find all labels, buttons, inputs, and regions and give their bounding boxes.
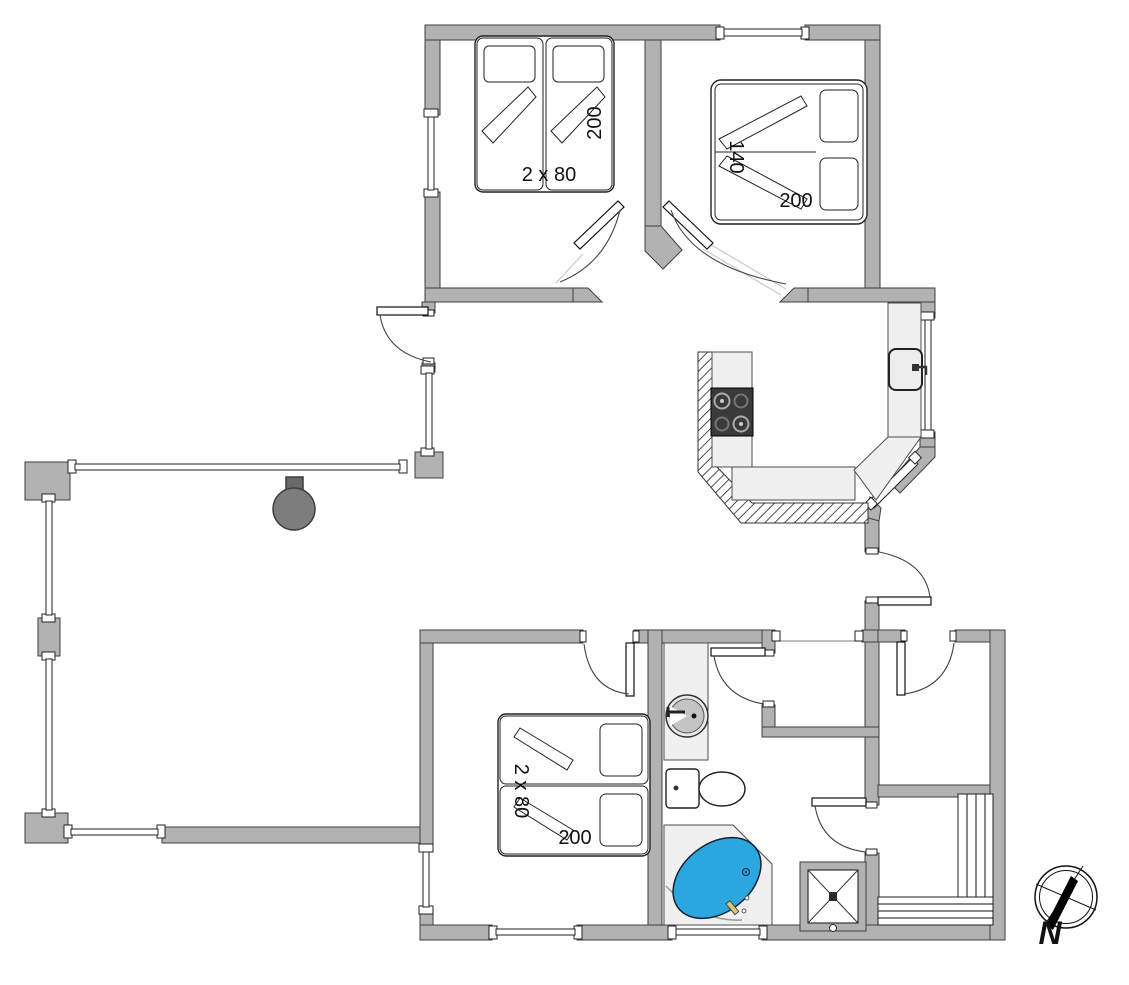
bathroom-sink: [666, 695, 708, 737]
compass-rose: N: [1035, 866, 1097, 951]
door-living-hall: [377, 307, 434, 364]
bed-width-label: 140: [725, 140, 747, 173]
window-bedroom-sw-south: [489, 926, 582, 939]
twin-beds-sw: 2 x 80 200: [498, 714, 650, 856]
kitchen-sink: [889, 349, 926, 390]
sauna-benches: [878, 794, 993, 925]
bed-length-label: 200: [779, 190, 812, 212]
door-exterior-east: [866, 548, 931, 605]
pillow: [553, 46, 604, 82]
toilet: [666, 769, 745, 808]
twin-beds-nw: 200 2 x 80: [475, 36, 614, 192]
floor-plan-svg: 200 2 x 80 140 200 2 x 80 200 N: [0, 0, 1129, 985]
corner-bathtub: [657, 821, 776, 935]
bed-width-label: 2 x 80: [510, 764, 532, 818]
door-bathroom: [711, 648, 774, 707]
door-bedroom-nw: [556, 201, 624, 283]
kitchen-counter-bottom: [732, 467, 855, 500]
bed-length-label: 200: [584, 106, 606, 139]
window-living-west-lower: [42, 652, 55, 817]
door-bedroom-sw: [580, 631, 639, 696]
window-living-west-upper: [42, 494, 55, 622]
pillow: [600, 724, 642, 776]
window-bathroom-south: [668, 926, 767, 939]
door-sauna: [812, 798, 877, 855]
shower: [800, 862, 866, 932]
window-bedroom-ne-north: [716, 27, 809, 39]
window-living-south: [64, 825, 165, 838]
window-bedroom-nw-west: [424, 109, 438, 197]
kitchen-stove: [711, 388, 753, 436]
pillow: [600, 794, 642, 846]
bathroom: [657, 643, 866, 935]
window-hall-west: [421, 366, 434, 456]
pillow: [484, 46, 535, 82]
bed-length-label: 200: [558, 827, 591, 849]
door-annex-room: [897, 631, 956, 695]
window-bedroom-sw-west: [419, 844, 433, 914]
pillow: [820, 158, 858, 210]
pillow: [820, 90, 858, 142]
opening-hall-vestibule: [772, 631, 863, 641]
wood-burning-stove: [273, 477, 315, 530]
window-living-north-long: [68, 460, 407, 473]
floor-plan: 200 2 x 80 140 200 2 x 80 200 N: [0, 0, 1129, 985]
compass-north-label: N: [1038, 915, 1062, 951]
bed-width-label: 2 x 80: [522, 164, 576, 186]
double-bed-ne: 140 200: [711, 80, 867, 224]
